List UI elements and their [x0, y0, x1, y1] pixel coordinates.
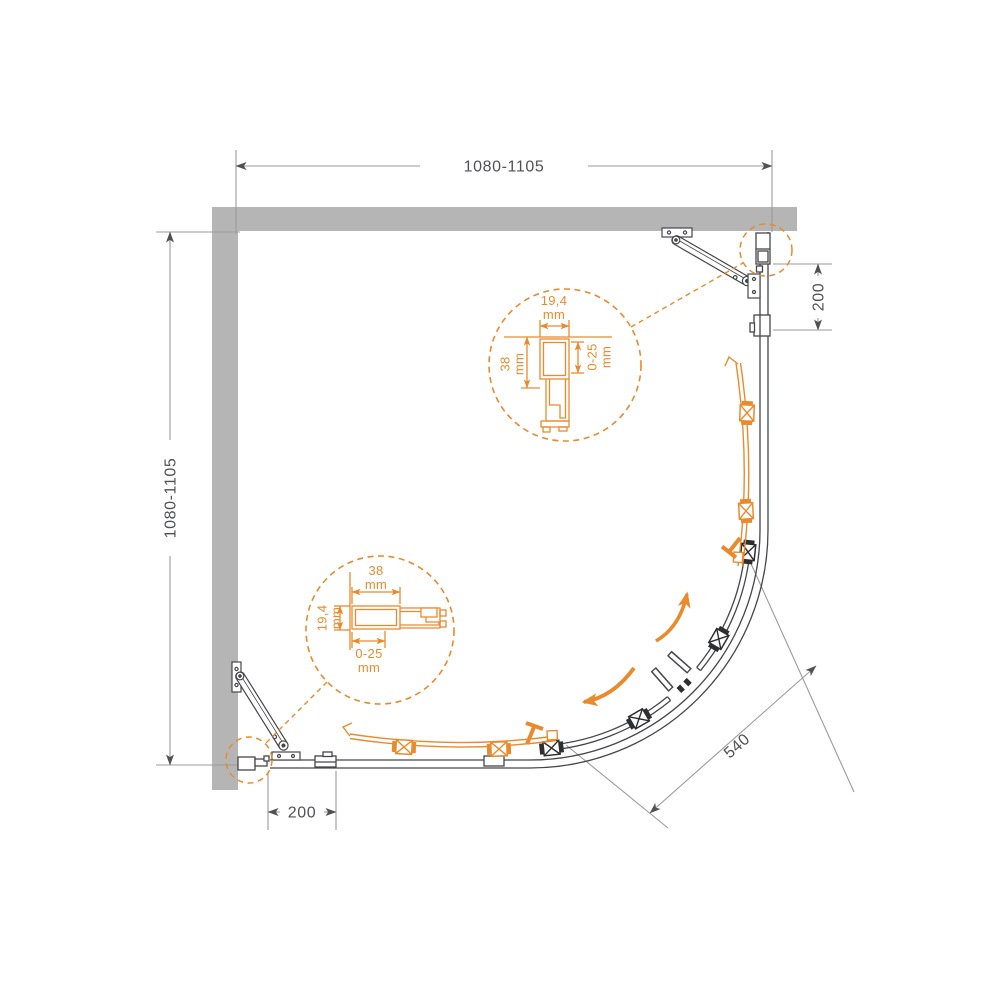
wall-left	[212, 207, 238, 790]
plan-drawing: 1080-1105 1080-1105 200 200 540	[0, 0, 990, 990]
bracket-glass-clamp	[272, 752, 300, 760]
open-door-end-profile	[547, 730, 557, 740]
roller-icon-orange	[487, 742, 511, 757]
detail-lower-depth-unit: mm	[329, 607, 344, 629]
detail-upper-depth-unit: mm	[512, 353, 527, 375]
bracket-pivot-dot	[282, 744, 286, 748]
screw-icon	[753, 291, 756, 294]
wall-profile-bottom	[238, 757, 255, 770]
roller-icon-orange	[392, 739, 417, 754]
dimension-label-top-width: 1080-1105	[464, 159, 545, 176]
wall-top	[212, 207, 797, 231]
screw-icon	[235, 683, 238, 686]
bracket-pivot-dot	[238, 674, 241, 677]
detail-lower-depth-value: 19,4	[315, 605, 330, 632]
dimension-label-bottom-panel: 200	[288, 805, 317, 822]
detail-lower-gap-unit: mm	[358, 660, 380, 675]
dimension-label-right-panel: 200	[811, 283, 828, 312]
detail-lower-gap-value: 0-25	[355, 646, 382, 661]
panel-connector-right	[754, 315, 770, 336]
detail-upper-gap-unit: mm	[599, 346, 614, 368]
detail-upper-gap-value: 0-25	[585, 343, 600, 370]
roller-icon-orange	[738, 499, 753, 524]
panel-connector-right-tab	[750, 323, 755, 332]
glass-end-profile	[484, 756, 504, 766]
screw-icon	[292, 755, 295, 758]
screw-icon	[753, 278, 756, 281]
dimension-label-left-depth: 1080-1105	[163, 458, 180, 539]
screw-icon	[235, 667, 238, 670]
glass-stopper	[264, 756, 269, 761]
shower-enclosure-spec-page: 1080-1105 1080-1105 200 200 540	[0, 0, 990, 990]
screw-icon	[667, 231, 670, 234]
screw-icon	[278, 755, 281, 758]
roller-icon-orange	[740, 401, 755, 425]
screw-icon	[683, 231, 686, 234]
profile-section-step	[421, 608, 437, 617]
panel-connector-bottom-tab	[323, 752, 332, 757]
detail-lower-width-value: 38	[368, 563, 383, 578]
canvas-background	[0, 0, 990, 990]
glass-stopper	[757, 266, 763, 272]
detail-lower-width-unit: mm	[365, 577, 387, 592]
detail-upper-width-unit: mm	[543, 307, 565, 322]
detail-upper-depth-value: 38	[498, 356, 513, 371]
detail-upper-width-value: 19,4	[541, 293, 568, 308]
wall-profile-top-inner	[758, 251, 768, 262]
bracket-pivot-dot	[674, 238, 677, 241]
